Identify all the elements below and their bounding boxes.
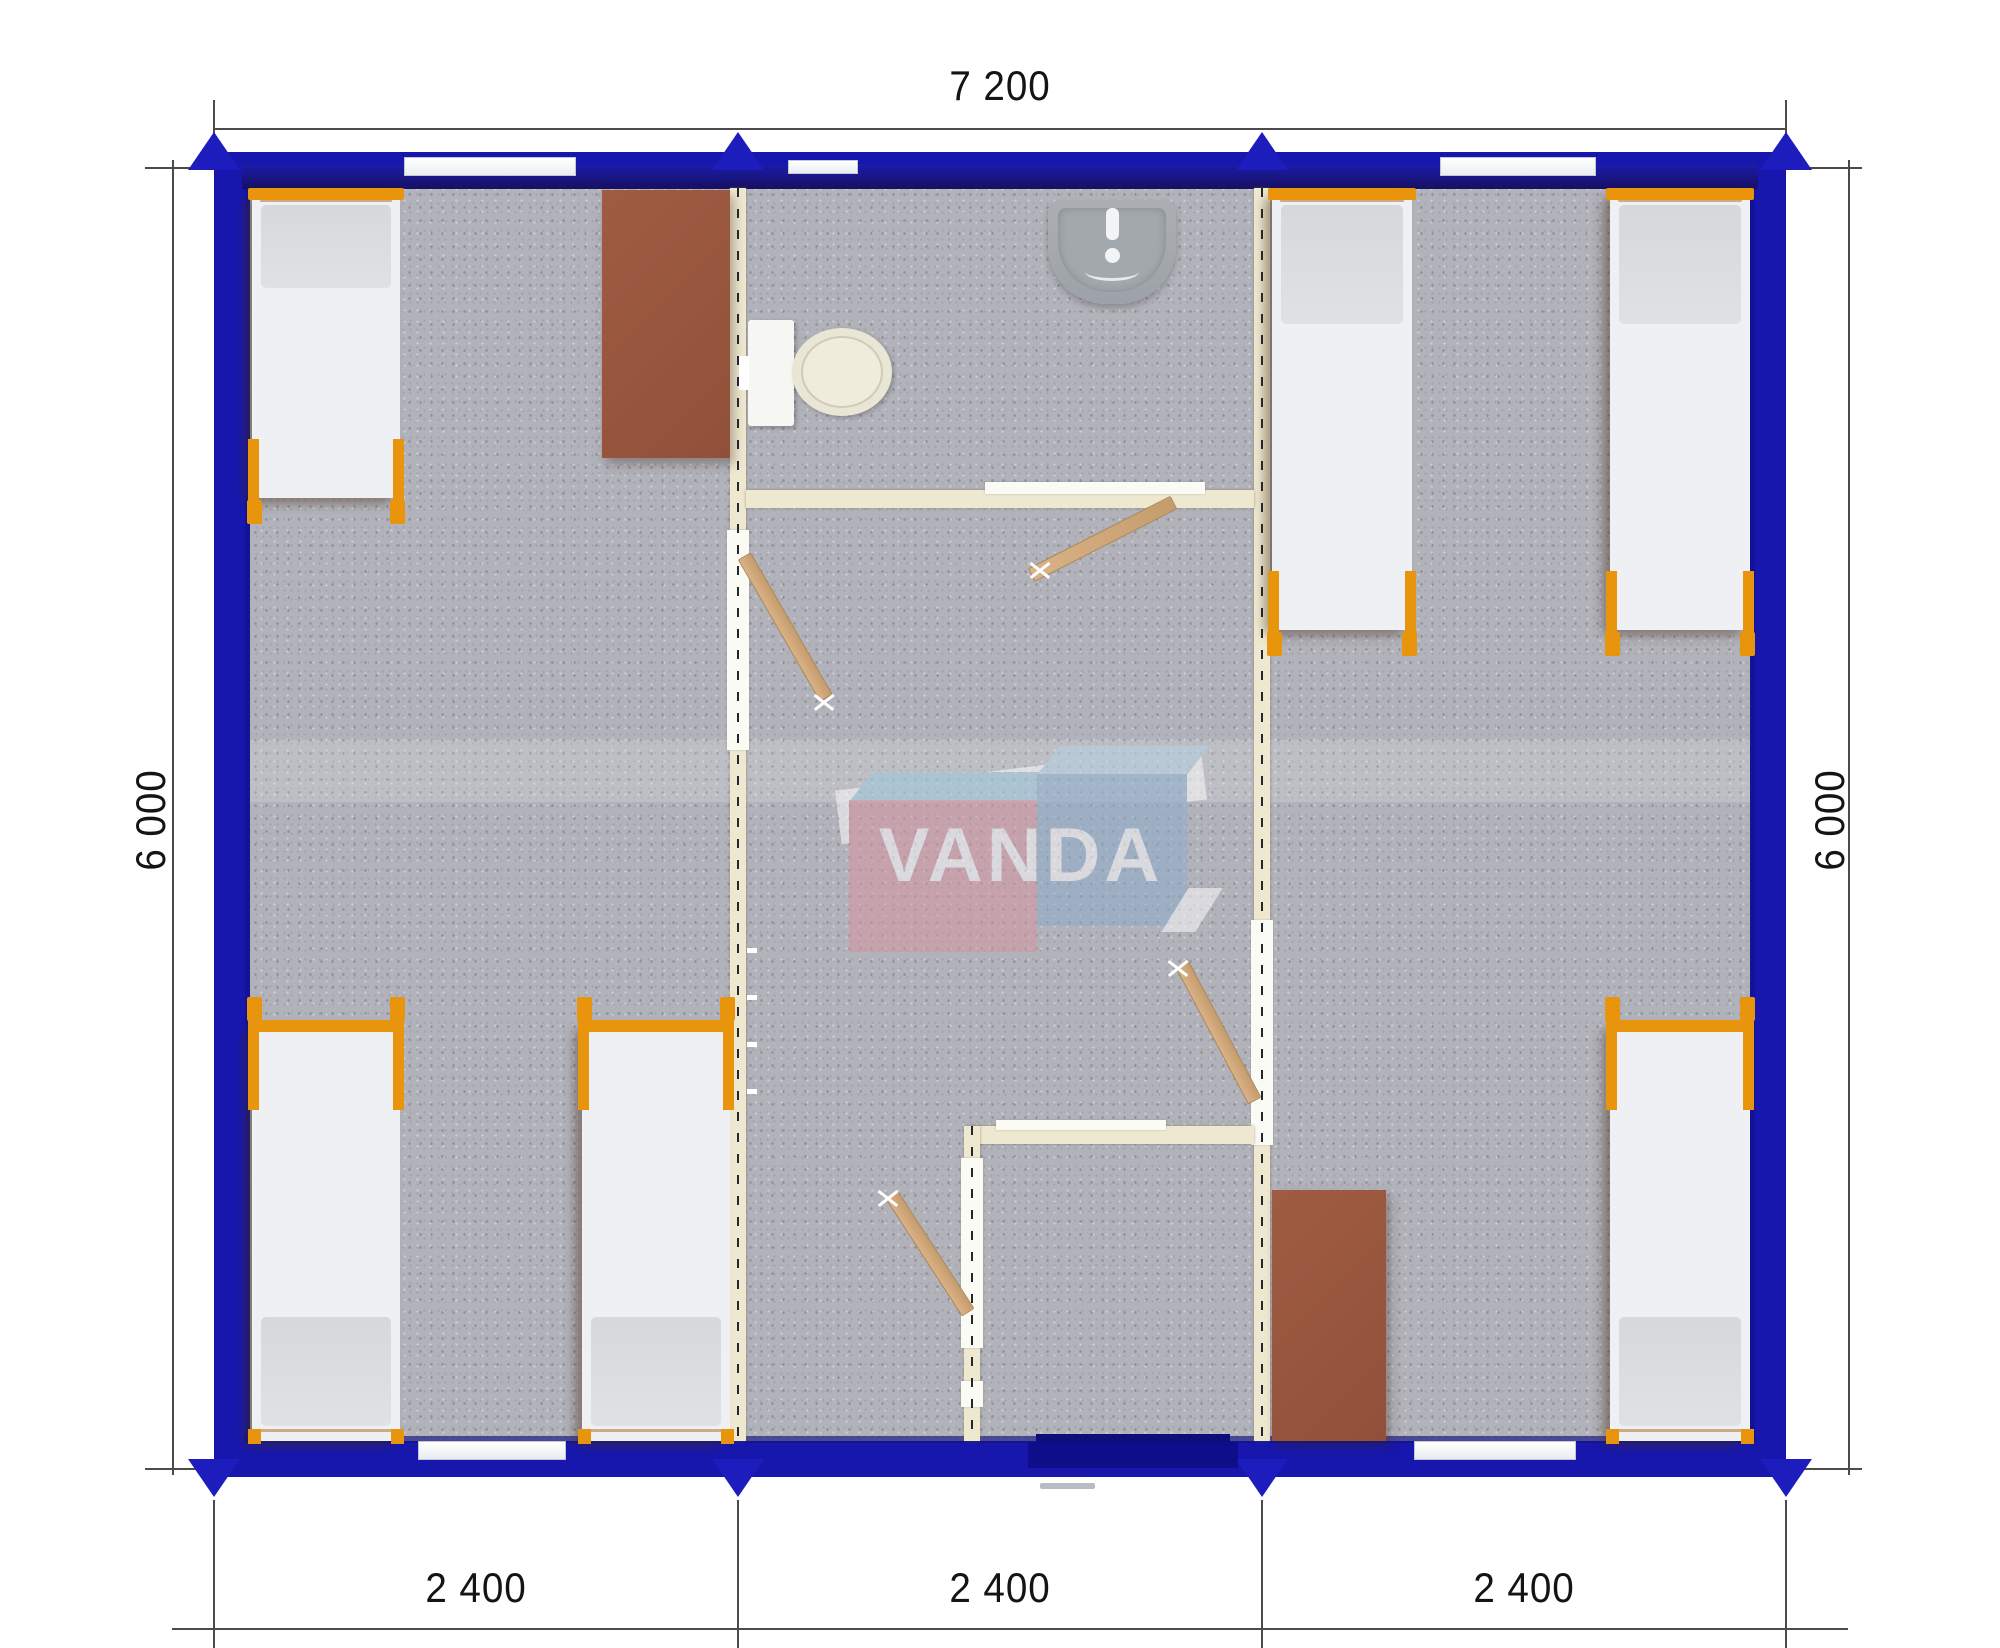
faucet-icon xyxy=(1106,208,1119,240)
dim-tick xyxy=(1261,1500,1263,1648)
window-bottom-right xyxy=(1414,1441,1576,1460)
module-marker-icon xyxy=(712,132,764,170)
vanda-logo: VANDA xyxy=(845,738,1197,960)
window-top-bathroom xyxy=(788,160,858,174)
pillow xyxy=(1619,205,1741,324)
dim-line-top xyxy=(214,128,1786,130)
dim-label-bottom-1: 2 400 xyxy=(384,1564,568,1612)
window-top-left xyxy=(404,157,576,176)
toilet-tank xyxy=(748,320,794,426)
module-marker-icon xyxy=(1760,132,1812,170)
dim-label-bottom-3: 2 400 xyxy=(1432,1564,1616,1612)
desk xyxy=(602,190,730,458)
dim-tick xyxy=(737,1500,739,1648)
door-hinge-mark-icon xyxy=(1028,558,1052,582)
door-hinge-mark-icon xyxy=(812,690,836,714)
bed xyxy=(1272,190,1412,630)
bed xyxy=(1610,1022,1750,1441)
bed-frame xyxy=(1606,1020,1754,1032)
module-marker-icon xyxy=(712,1459,764,1497)
dim-tick xyxy=(213,1500,215,1648)
module-marker-icon xyxy=(1760,1459,1812,1497)
toilet-flush-button xyxy=(739,356,749,390)
pillow xyxy=(1619,1317,1741,1426)
toilet-seat xyxy=(801,336,883,408)
logo-cube-top xyxy=(1037,746,1210,775)
window-bottom-left xyxy=(418,1441,566,1460)
floor-plan-page: 7 200 6 000 6 000 2 400 2 400 2 400 xyxy=(0,0,2000,1648)
dim-line-left xyxy=(172,160,174,1475)
module-marker-icon xyxy=(188,132,240,170)
dim-tick xyxy=(1785,1500,1787,1648)
right-wall-inner-shade xyxy=(1750,188,1755,1441)
toilet xyxy=(792,328,892,416)
desk xyxy=(1272,1190,1386,1441)
vestibule-wall-horizontal xyxy=(972,1126,1254,1144)
bed-frame xyxy=(248,188,404,200)
bed xyxy=(252,1022,400,1441)
pillow xyxy=(1281,205,1403,324)
partition-wall-right xyxy=(1254,188,1270,1441)
door-hinge-mark-icon xyxy=(876,1186,900,1210)
bed xyxy=(1610,190,1750,630)
bed xyxy=(252,190,400,498)
bathroom-wall xyxy=(746,490,1254,508)
window-top-right xyxy=(1440,157,1596,176)
pillow xyxy=(261,1317,391,1426)
sink xyxy=(1048,200,1176,304)
module-marker-icon xyxy=(188,1459,240,1497)
wall-hook xyxy=(747,1042,757,1047)
entrance-door xyxy=(1028,1442,1238,1468)
entrance-threshold xyxy=(1040,1483,1095,1489)
left-wall-inner-shade xyxy=(245,188,250,1441)
logo-cube-top xyxy=(849,772,1060,802)
wall-hook xyxy=(747,948,757,953)
bed-frame xyxy=(248,1020,404,1032)
module-marker-icon xyxy=(1236,132,1288,170)
bed-frame xyxy=(578,1020,734,1032)
bed-frame xyxy=(1268,188,1416,200)
logo-text: VANDA xyxy=(845,812,1197,899)
dim-label-top: 7 200 xyxy=(908,62,1092,110)
wall-hook xyxy=(747,995,757,1000)
sink-drain xyxy=(1085,262,1139,281)
dim-line-bottom xyxy=(172,1628,1848,1630)
faucet-icon xyxy=(1105,248,1120,263)
building-exterior-walls: VANDA xyxy=(214,152,1786,1477)
dim-label-right: 6 000 xyxy=(1806,765,1846,875)
dim-label-left: 6 000 xyxy=(127,765,167,875)
vestibule-wall-vertical xyxy=(964,1126,980,1441)
door-frame-panel xyxy=(985,482,1205,494)
wall-hook xyxy=(747,1089,757,1094)
pillow xyxy=(261,205,391,288)
bed xyxy=(582,1022,730,1441)
module-marker-icon xyxy=(1236,1459,1288,1497)
dim-line-right xyxy=(1848,160,1850,1475)
bed-frame xyxy=(1606,188,1754,200)
door-frame-panel xyxy=(996,1120,1166,1130)
pillow xyxy=(591,1317,721,1426)
dim-label-bottom-2: 2 400 xyxy=(908,1564,1092,1612)
